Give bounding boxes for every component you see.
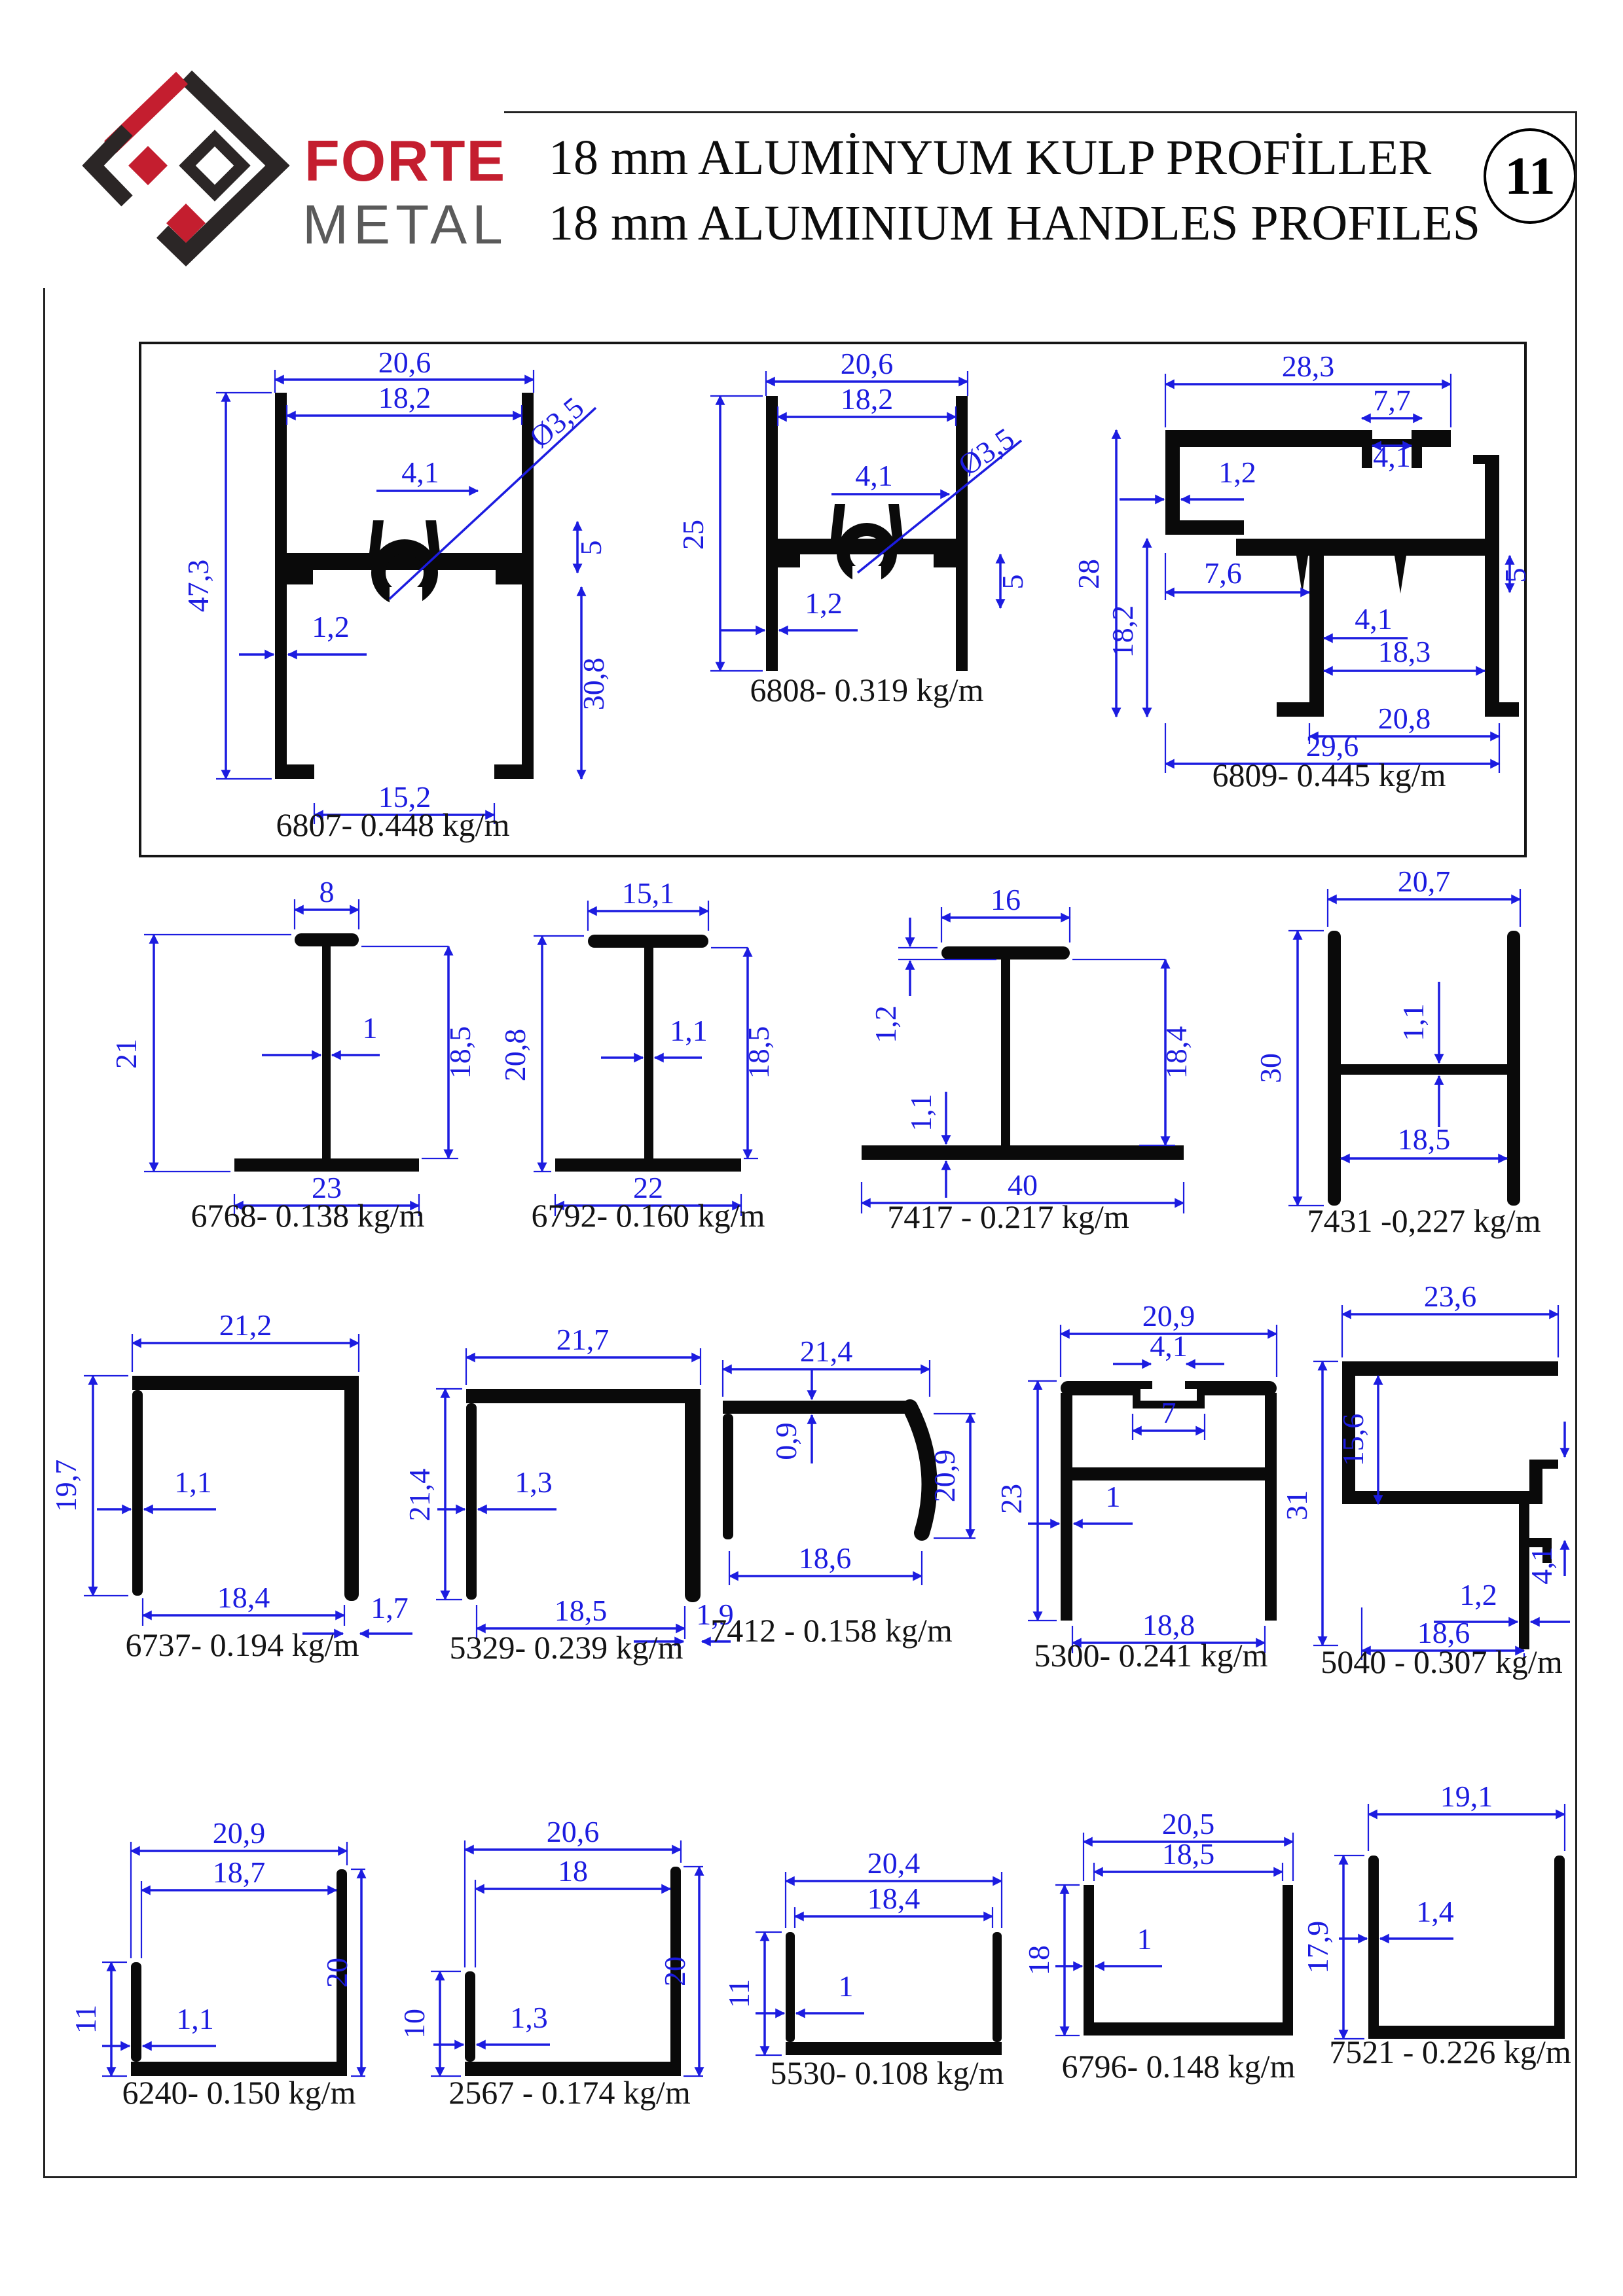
- svg-text:1: 1: [1106, 1480, 1121, 1513]
- svg-text:18,2: 18,2: [1106, 605, 1139, 658]
- profile-label: 5300- 0.241 kg/m: [1034, 1637, 1268, 1674]
- profile-7521-shape: [1368, 1856, 1565, 2039]
- header-rule: [504, 111, 1577, 113]
- svg-text:18,2: 18,2: [378, 381, 431, 414]
- profile-7412-shape: [723, 1401, 930, 1539]
- profile-7521-dimensions: 19,1 17,9 1,4: [1301, 1780, 1565, 2039]
- svg-text:20,6: 20,6: [378, 346, 431, 379]
- svg-text:0,9: 0,9: [769, 1422, 803, 1460]
- svg-text:5: 5: [574, 541, 608, 556]
- svg-text:4,1: 4,1: [1355, 602, 1393, 636]
- svg-text:31: 31: [1280, 1490, 1313, 1520]
- svg-text:1,2: 1,2: [869, 1005, 902, 1043]
- profile-6796-drawing: 20,5 18,5 18 1 6796- 0.148 kg/m: [1048, 1820, 1309, 2081]
- svg-text:18,7: 18,7: [213, 1856, 266, 1889]
- profile-6768-shape: [234, 933, 419, 1172]
- svg-text:20,8: 20,8: [1378, 702, 1431, 735]
- svg-text:4,1: 4,1: [1525, 1547, 1558, 1585]
- svg-text:20,6: 20,6: [841, 347, 894, 380]
- profile-2567-dimensions: 20,6 18 10 1,3 20: [397, 1815, 703, 2076]
- profile-label: 7521 - 0.226 kg/m: [1329, 2034, 1571, 2070]
- profile-5040-drawing: 23,6 15,6 31 4,1 1,2 18,6 5040 - 0.307 k…: [1303, 1283, 1578, 1676]
- svg-text:16: 16: [991, 883, 1021, 916]
- svg-text:18,5: 18,5: [1398, 1122, 1451, 1156]
- frame-right-border: [1575, 111, 1577, 2178]
- profile-6737-drawing: 21,2 19,7 1,1 18,4 1,7 6737- 0.194 kg/m: [59, 1302, 419, 1659]
- profile-7412-drawing: 21,4 0,9 20,9 18,6 7412 - 0.158 kg/m: [714, 1335, 982, 1662]
- svg-text:20: 20: [658, 1956, 691, 1986]
- logo-small-diamond: [187, 138, 242, 193]
- svg-text:18,2: 18,2: [841, 382, 894, 416]
- svg-text:20,9: 20,9: [928, 1450, 961, 1503]
- profile-6807-dimensions: 20,6 18,2 Ø3,5 4,1 5 47,3 1,2 30,8 15,2: [181, 346, 610, 824]
- profile-6768-drawing: 8 21 1 18,5 23 6768- 0.138 kg/m: [92, 884, 484, 1230]
- svg-text:4,1: 4,1: [855, 459, 893, 492]
- svg-text:1,2: 1,2: [1218, 456, 1256, 489]
- svg-text:7: 7: [1161, 1396, 1176, 1429]
- svg-text:18,5: 18,5: [555, 1594, 608, 1627]
- svg-text:5: 5: [1499, 568, 1532, 583]
- svg-text:1,2: 1,2: [312, 610, 350, 643]
- profile-7431-dimensions: 20,7 30 1,1 18,5: [1254, 865, 1520, 1206]
- profile-5040-shape: [1342, 1361, 1558, 1649]
- svg-text:30,8: 30,8: [577, 658, 610, 711]
- svg-text:28,3: 28,3: [1282, 350, 1335, 383]
- profile-5329-drawing: 21,7 21,4 1,3 18,5 1,9 5329- 0.239 kg/m: [426, 1322, 733, 1662]
- profile-7417-dimensions: 16 1,2 1,1 18,4 40: [862, 883, 1193, 1213]
- profile-5300-drawing: 20,9 4,1 7 23 1 18,8 5300- 0.241 kg/m: [1008, 1302, 1303, 1669]
- profile-label: 5040 - 0.307 kg/m: [1321, 1643, 1563, 1680]
- profile-label: 6808- 0.319 kg/m: [750, 672, 984, 708]
- svg-text:1,4: 1,4: [1416, 1895, 1454, 1928]
- profile-6737-shape: [132, 1376, 359, 1601]
- svg-text:20,8: 20,8: [498, 1029, 532, 1082]
- svg-text:1,1: 1,1: [904, 1094, 938, 1132]
- svg-text:18,4: 18,4: [867, 1882, 921, 1915]
- profile-label: 6809- 0.445 kg/m: [1213, 757, 1446, 793]
- brand-line1: FORTE: [304, 128, 506, 194]
- profile-5530-drawing: 20,4 18,4 11 1 5530- 0.108 kg/m: [746, 1859, 1021, 2088]
- svg-text:25: 25: [676, 520, 710, 550]
- profile-6792-drawing: 15,1 20,8 1,1 18,5 22 6792- 0.160 kg/m: [517, 884, 779, 1230]
- profile-5329-shape: [466, 1389, 701, 1602]
- svg-text:21,4: 21,4: [403, 1469, 436, 1522]
- svg-text:18: 18: [558, 1854, 588, 1888]
- svg-text:1,1: 1,1: [1396, 1003, 1430, 1041]
- frame-bottom-border: [43, 2176, 1577, 2178]
- svg-text:23,6: 23,6: [1424, 1280, 1477, 1313]
- profile-label: 6807- 0.448 kg/m: [276, 806, 510, 843]
- profile-7431-drawing: 20,7 30 1,1 18,5 7431 -0,227 kg/m: [1277, 870, 1571, 1237]
- profile-6808-dimensions: 20,6 18,2 4,1 Ø3,5 25 5 1,2: [676, 347, 1029, 671]
- forte-metal-logo-icon: [84, 67, 288, 264]
- profile-label: 6240- 0.150 kg/m: [122, 2074, 356, 2111]
- svg-text:30: 30: [1254, 1053, 1287, 1083]
- profile-label: 6796- 0.148 kg/m: [1062, 2048, 1296, 2085]
- profile-5530-dimensions: 20,4 18,4 11 1: [722, 1846, 1002, 2055]
- svg-text:18,4: 18,4: [217, 1581, 270, 1614]
- svg-text:40: 40: [1008, 1168, 1038, 1202]
- profile-6792-shape: [555, 935, 741, 1172]
- profile-label: 6768- 0.138 kg/m: [191, 1197, 425, 1234]
- svg-text:18,4: 18,4: [1159, 1026, 1193, 1079]
- svg-text:18,6: 18,6: [799, 1541, 852, 1575]
- svg-text:7,6: 7,6: [1204, 556, 1242, 590]
- profile-7417-drawing: 16 1,2 1,1 18,4 40 7417 - 0.217 kg/m: [799, 890, 1244, 1230]
- profile-label: 7412 - 0.158 kg/m: [710, 1612, 953, 1649]
- profile-label: 2567 - 0.174 kg/m: [448, 2074, 691, 2111]
- svg-text:19,7: 19,7: [49, 1460, 82, 1513]
- page-title-tr: 18 mm ALUMİNYUM KULP PROFİLLER: [549, 130, 1431, 187]
- svg-text:18,5: 18,5: [443, 1026, 477, 1079]
- page-title-en: 18 mm ALUMINIUM HANDLES PROFILES: [549, 195, 1480, 252]
- svg-text:19,1: 19,1: [1440, 1780, 1493, 1813]
- svg-text:15,6: 15,6: [1336, 1414, 1370, 1467]
- svg-text:17,9: 17,9: [1301, 1921, 1334, 1974]
- svg-text:7,7: 7,7: [1373, 384, 1411, 417]
- profile-6807-drawing: 20,6 18,2 Ø3,5 4,1 5 47,3 1,2 30,8 15,2 …: [177, 357, 622, 841]
- svg-text:1,7: 1,7: [371, 1591, 409, 1624]
- svg-text:23: 23: [994, 1484, 1028, 1514]
- svg-text:18,5: 18,5: [1162, 1837, 1215, 1871]
- profile-7431-shape: [1328, 931, 1520, 1206]
- svg-text:1,1: 1,1: [670, 1014, 708, 1047]
- svg-text:1,1: 1,1: [174, 1465, 212, 1499]
- svg-text:1,3: 1,3: [515, 1465, 553, 1499]
- svg-text:1,2: 1,2: [1459, 1578, 1497, 1611]
- svg-text:21: 21: [109, 1039, 143, 1069]
- svg-text:21,2: 21,2: [219, 1308, 272, 1342]
- profile-6809-drawing: 28,3 7,7 4,1 1,2 7,6 28 18,2 5 4,1 18,3 …: [1080, 357, 1525, 789]
- svg-text:28: 28: [1072, 559, 1105, 589]
- svg-text:20: 20: [320, 1958, 354, 1988]
- page-number-badge: 11: [1484, 128, 1577, 224]
- svg-text:5: 5: [996, 575, 1029, 590]
- brand-line2: METAL: [302, 193, 508, 257]
- svg-text:18,5: 18,5: [742, 1026, 775, 1079]
- profile-label: 7431 -0,227 kg/m: [1307, 1202, 1541, 1239]
- svg-text:1,3: 1,3: [510, 2001, 548, 2034]
- logo-red-diamond-left: [128, 146, 168, 185]
- svg-text:10: 10: [397, 2009, 431, 2039]
- svg-text:47,3: 47,3: [181, 560, 215, 613]
- svg-text:1: 1: [839, 1969, 854, 2003]
- profile-label: 6737- 0.194 kg/m: [126, 1626, 359, 1663]
- profile-6240-drawing: 20,9 18,7 11 1,1 20 6240- 0.150 kg/m: [92, 1826, 367, 2108]
- svg-text:4,1: 4,1: [401, 456, 439, 489]
- profile-7412-dimensions: 21,4 0,9 20,9 18,6: [723, 1335, 976, 1585]
- profile-7521-drawing: 19,1 17,9 1,4 7521 - 0.226 kg/m: [1329, 1793, 1571, 2068]
- logo-left-notch: [93, 130, 127, 201]
- profile-2567-drawing: 20,6 18 10 1,3 20 2567 - 0.174 kg/m: [419, 1826, 720, 2108]
- svg-text:1: 1: [363, 1011, 378, 1045]
- profile-6796-dimensions: 20,5 18,5 18 1: [1022, 1807, 1293, 2036]
- svg-text:20,5: 20,5: [1162, 1807, 1215, 1840]
- svg-text:11: 11: [722, 1979, 756, 2008]
- svg-text:1: 1: [1137, 1922, 1152, 1956]
- profile-6796-shape: [1084, 1885, 1293, 2036]
- svg-text:18: 18: [1022, 1945, 1055, 1975]
- svg-text:20,4: 20,4: [867, 1846, 921, 1880]
- svg-text:8: 8: [319, 875, 335, 908]
- svg-text:20,9: 20,9: [213, 1816, 266, 1850]
- profile-6808-drawing: 20,6 18,2 4,1 Ø3,5 25 5 1,2 6808- 0.319 …: [674, 357, 1041, 710]
- svg-text:20,6: 20,6: [547, 1815, 600, 1848]
- svg-text:21,4: 21,4: [800, 1335, 853, 1368]
- svg-text:18,3: 18,3: [1378, 635, 1431, 668]
- profile-label: 5329- 0.239 kg/m: [450, 1629, 684, 1666]
- svg-text:21,7: 21,7: [556, 1323, 610, 1356]
- svg-text:15,1: 15,1: [622, 876, 675, 910]
- svg-text:1,2: 1,2: [805, 586, 843, 620]
- catalog-page: { "header": { "brand1": "FORTE", "brand2…: [0, 0, 1623, 2296]
- profile-5329-dimensions: 21,7 21,4 1,3 18,5 1,9: [403, 1323, 734, 1641]
- profile-5530-shape: [786, 1932, 1002, 2055]
- frame-left-border: [43, 288, 45, 2178]
- profile-6240-dimensions: 20,9 18,7 11 1,1 20: [69, 1816, 365, 2076]
- profile-label: 6792- 0.160 kg/m: [532, 1197, 765, 1234]
- profile-label: 7417 - 0.217 kg/m: [887, 1198, 1129, 1235]
- svg-text:20,7: 20,7: [1398, 865, 1451, 898]
- svg-text:11: 11: [69, 2005, 102, 2034]
- svg-text:4,1: 4,1: [1150, 1329, 1188, 1363]
- svg-text:20,9: 20,9: [1142, 1299, 1195, 1333]
- profile-label: 5530- 0.108 kg/m: [771, 2054, 1004, 2091]
- svg-text:4,1: 4,1: [1373, 440, 1411, 473]
- svg-text:1,1: 1,1: [176, 2002, 214, 2036]
